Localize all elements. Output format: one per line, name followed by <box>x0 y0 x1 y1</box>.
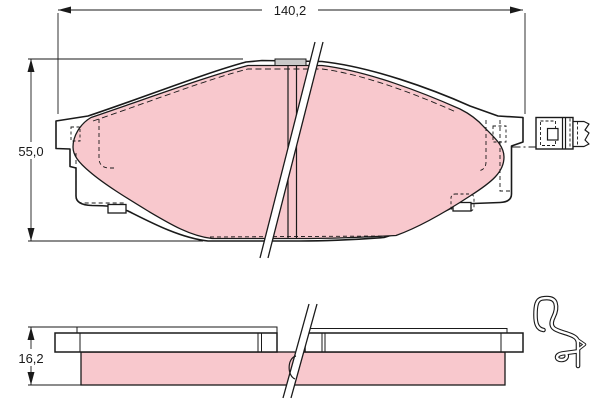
edge-view <box>55 304 523 398</box>
backplate-right <box>305 333 523 352</box>
arrowhead-left <box>58 7 71 14</box>
thickness-dimension-label: 16,2 <box>18 351 43 366</box>
connector-terminal <box>548 129 559 141</box>
top-tab <box>275 59 306 66</box>
bottom-tab-left <box>108 205 126 214</box>
spring-clip-icon <box>536 298 585 366</box>
backplate-left <box>55 333 277 352</box>
shim-left <box>77 327 277 333</box>
length-dimension-label: 140,2 <box>274 3 307 18</box>
arrowhead-right <box>510 7 523 14</box>
brake-pad-drawing: 140,2 55,0 <box>0 0 600 400</box>
arrowhead-down <box>28 372 35 385</box>
technical-drawing-canvas: 140,2 55,0 <box>0 0 600 400</box>
connector-plug <box>573 122 589 147</box>
arrowhead-down <box>28 228 35 241</box>
arrowhead-up <box>28 327 35 340</box>
height-dimension-label: 55,0 <box>18 144 43 159</box>
arrowhead-up <box>28 59 35 72</box>
